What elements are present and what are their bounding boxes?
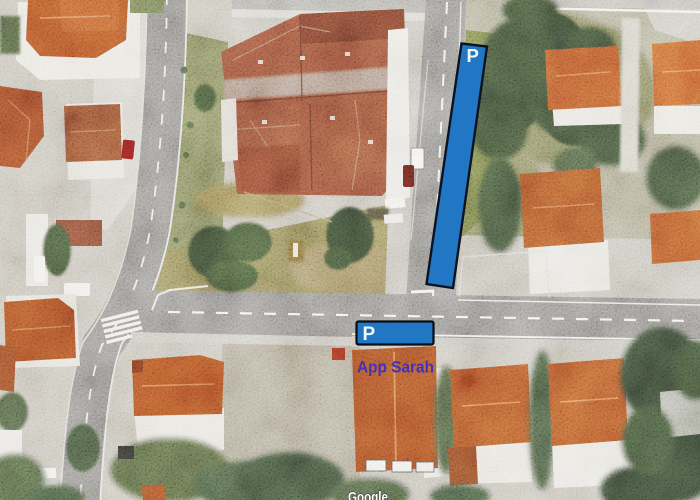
svg-text:Google: Google	[348, 490, 388, 500]
svg-text:P: P	[363, 324, 376, 345]
svg-text:App Sarah: App Sarah	[357, 358, 434, 377]
svg-text:P: P	[467, 45, 479, 66]
